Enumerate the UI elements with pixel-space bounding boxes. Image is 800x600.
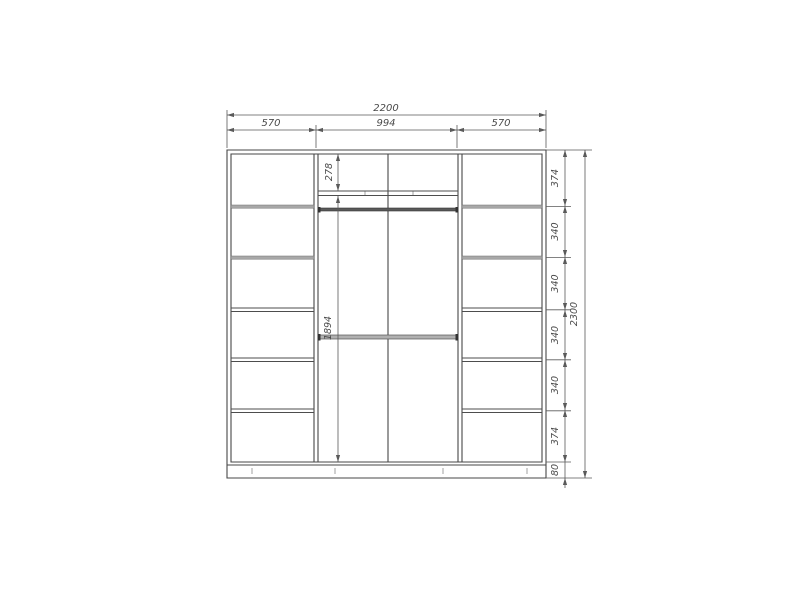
dim-label-segment-1: 374 [550,169,561,187]
dim-label-segment-4: 340 [550,326,561,344]
dim-label-top-shelf-height: 278 [324,163,335,181]
shelf-band [231,205,314,208]
tick-marks [252,192,527,475]
dim-label-hanging-section-height: 1894 [323,316,334,340]
dim-label-overall-width: 2200 [373,103,398,114]
shelf-lines [231,191,542,413]
dim-label-right-section-width: 570 [491,118,510,129]
dim-label-segment-6: 374 [550,427,561,445]
dim-label-segment-2: 340 [550,222,561,240]
cabinet-frame [227,150,546,478]
dimension-lines [227,110,592,488]
dim-label-segment-5: 340 [550,376,561,394]
hanging-rod-upper [319,208,457,211]
shelf-band [462,205,542,208]
dim-label-plinth-height: 80 [550,464,561,476]
hanging-rod-lower [319,335,457,339]
cabinet-structure [227,150,546,478]
dim-label-overall-height: 2300 [569,302,580,326]
dimension-line-paths [227,110,592,488]
dim-label-left-section-width: 570 [261,118,280,129]
wardrobe-elevation-drawing: 2200 570 994 570 278 1894 374 340 340 34… [0,0,800,600]
dimension-labels: 2200 570 994 570 278 1894 374 340 340 34… [261,103,580,476]
drawing-canvas: 2200 570 994 570 278 1894 374 340 340 34… [0,0,800,600]
dim-label-middle-section-width: 994 [376,118,395,129]
shelf-band [231,256,314,259]
shelf-band [462,256,542,259]
shelf-bands [231,205,542,259]
dim-label-segment-3: 340 [550,274,561,292]
dimension-arrows [227,113,587,485]
